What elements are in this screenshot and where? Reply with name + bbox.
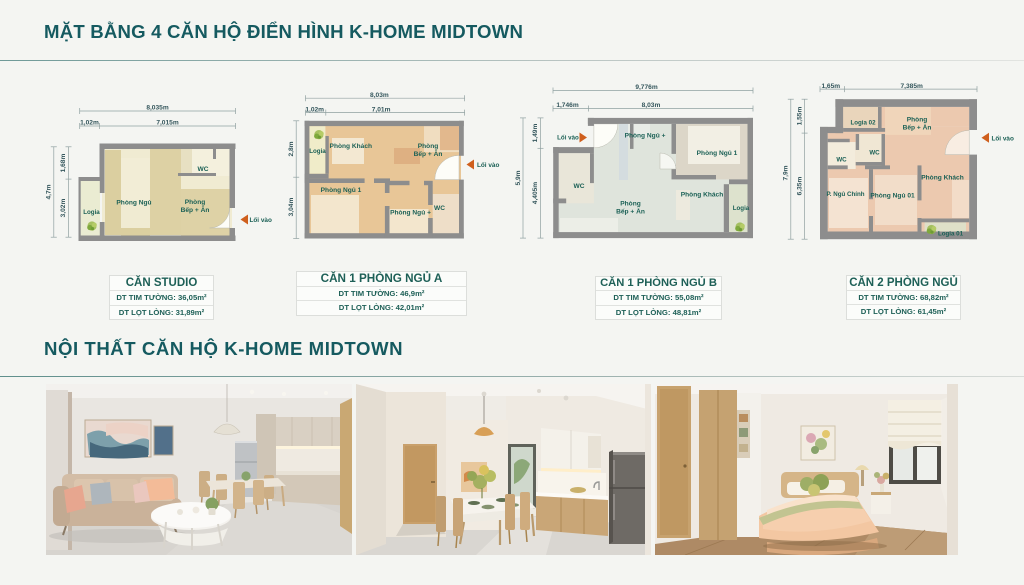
svg-text:8,035m: 8,035m [146, 105, 169, 112]
svg-text:P. Ngủ Chính: P. Ngủ Chính [826, 191, 864, 198]
svg-text:1,65m: 1,65m [821, 83, 840, 90]
svg-text:WC: WC [836, 157, 847, 164]
svg-text:Phòng Ngủ 1: Phòng Ngủ 1 [321, 187, 362, 194]
svg-text:4,7m: 4,7m [46, 184, 53, 199]
svg-text:1,68m: 1,68m [60, 154, 67, 173]
svg-text:7,015m: 7,015m [156, 120, 179, 127]
svg-text:1,746m: 1,746m [556, 102, 579, 109]
svg-text:Phòng Khách: Phòng Khách [921, 175, 964, 182]
svg-text:Logia 02: Logia 02 [850, 119, 876, 126]
svg-text:1,49m: 1,49m [532, 124, 539, 143]
svg-text:Logia: Logia [309, 148, 326, 155]
svg-text:Bếp + Ăn: Bếp + Ăn [616, 207, 645, 216]
svg-text:WC: WC [574, 183, 585, 190]
svg-text:Phòng Ngủ +: Phòng Ngủ + [625, 133, 666, 140]
svg-text:Phòng: Phòng [907, 117, 928, 124]
svg-text:Lối vào: Lối vào [992, 134, 1014, 142]
svg-text:8,03m: 8,03m [370, 92, 389, 99]
svg-text:2,8m: 2,8m [288, 141, 295, 156]
svg-text:Phòng Ngủ 01: Phòng Ngủ 01 [870, 193, 915, 200]
svg-text:WC: WC [434, 205, 445, 212]
svg-text:4,405m: 4,405m [532, 182, 539, 205]
svg-text:3,02m: 3,02m [60, 199, 67, 218]
svg-text:8,03m: 8,03m [642, 102, 661, 109]
svg-text:Phòng Ngủ: Phòng Ngủ [116, 200, 151, 207]
svg-text:Bếp + Ăn: Bếp + Ăn [903, 123, 932, 132]
svg-text:1,02m: 1,02m [80, 120, 99, 127]
svg-text:Phòng Ngủ 1: Phòng Ngủ 1 [697, 150, 738, 157]
svg-text:WC: WC [869, 150, 880, 157]
svg-text:Lối vào: Lối vào [477, 161, 499, 169]
svg-text:3,04m: 3,04m [288, 198, 295, 217]
svg-text:5,9m: 5,9m [515, 170, 522, 185]
svg-text:Bếp + Ăn: Bếp + Ăn [414, 149, 443, 158]
svg-text:Phòng: Phòng [620, 201, 641, 208]
svg-text:7,385m: 7,385m [901, 83, 924, 90]
svg-text:Logia: Logia [83, 209, 100, 216]
svg-text:Lối vào: Lối vào [557, 135, 579, 142]
svg-text:1,55m: 1,55m [796, 107, 803, 126]
svg-text:Bếp + Ăn: Bếp + Ăn [181, 205, 210, 214]
svg-text:Phòng: Phòng [185, 199, 206, 206]
svg-text:Phòng Ngủ +: Phòng Ngủ + [390, 210, 431, 217]
svg-text:7,9m: 7,9m [783, 165, 790, 180]
svg-text:9,776m: 9,776m [635, 84, 658, 91]
svg-text:WC: WC [198, 166, 209, 173]
svg-text:Phòng Khách: Phòng Khách [681, 192, 724, 199]
svg-text:Phòng Khách: Phòng Khách [330, 143, 373, 150]
svg-text:6,35m: 6,35m [796, 177, 803, 196]
svg-text:7,01m: 7,01m [372, 106, 391, 113]
svg-text:1,02m: 1,02m [305, 106, 324, 113]
svg-text:Logia: Logia [733, 205, 750, 212]
svg-text:Logia 01: Logia 01 [938, 231, 964, 238]
svg-text:Phòng: Phòng [418, 143, 439, 150]
svg-text:Lối vào: Lối vào [250, 216, 272, 224]
